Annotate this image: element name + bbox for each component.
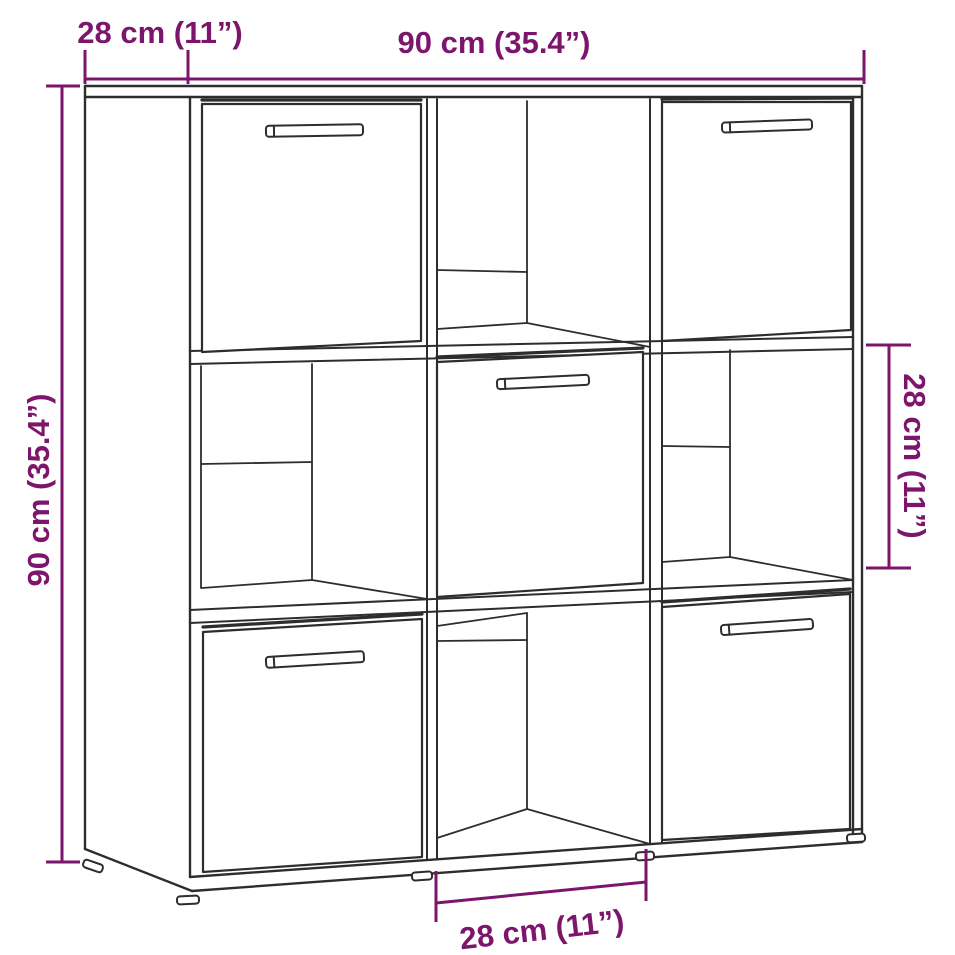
door-top-left — [202, 104, 421, 352]
shelf-feet — [82, 833, 865, 904]
dimension-label-top-width: 90 cm (35.4”) — [398, 25, 591, 60]
dimension-label-top-depth: 28 cm (11”) — [77, 15, 242, 50]
bookshelf-dimension-diagram: 28 cm (11”) 90 cm (35.4”) 90 cm (35.4”) … — [0, 0, 955, 955]
door-middle-center — [437, 352, 643, 597]
door-top-right — [662, 102, 851, 341]
door-handle-top-left — [266, 124, 363, 137]
dimension-label-cube-width: 28 cm (11”) — [458, 903, 626, 955]
dimension-label-cube-height: 28 cm (11”) — [897, 373, 932, 538]
bookshelf-drawing — [82, 86, 865, 905]
door-handle-top-right — [722, 119, 812, 132]
dimension-label-side-height: 90 cm (35.4”) — [21, 394, 56, 587]
diagram-canvas: 28 cm (11”) 90 cm (35.4”) 90 cm (35.4”) … — [0, 0, 955, 955]
